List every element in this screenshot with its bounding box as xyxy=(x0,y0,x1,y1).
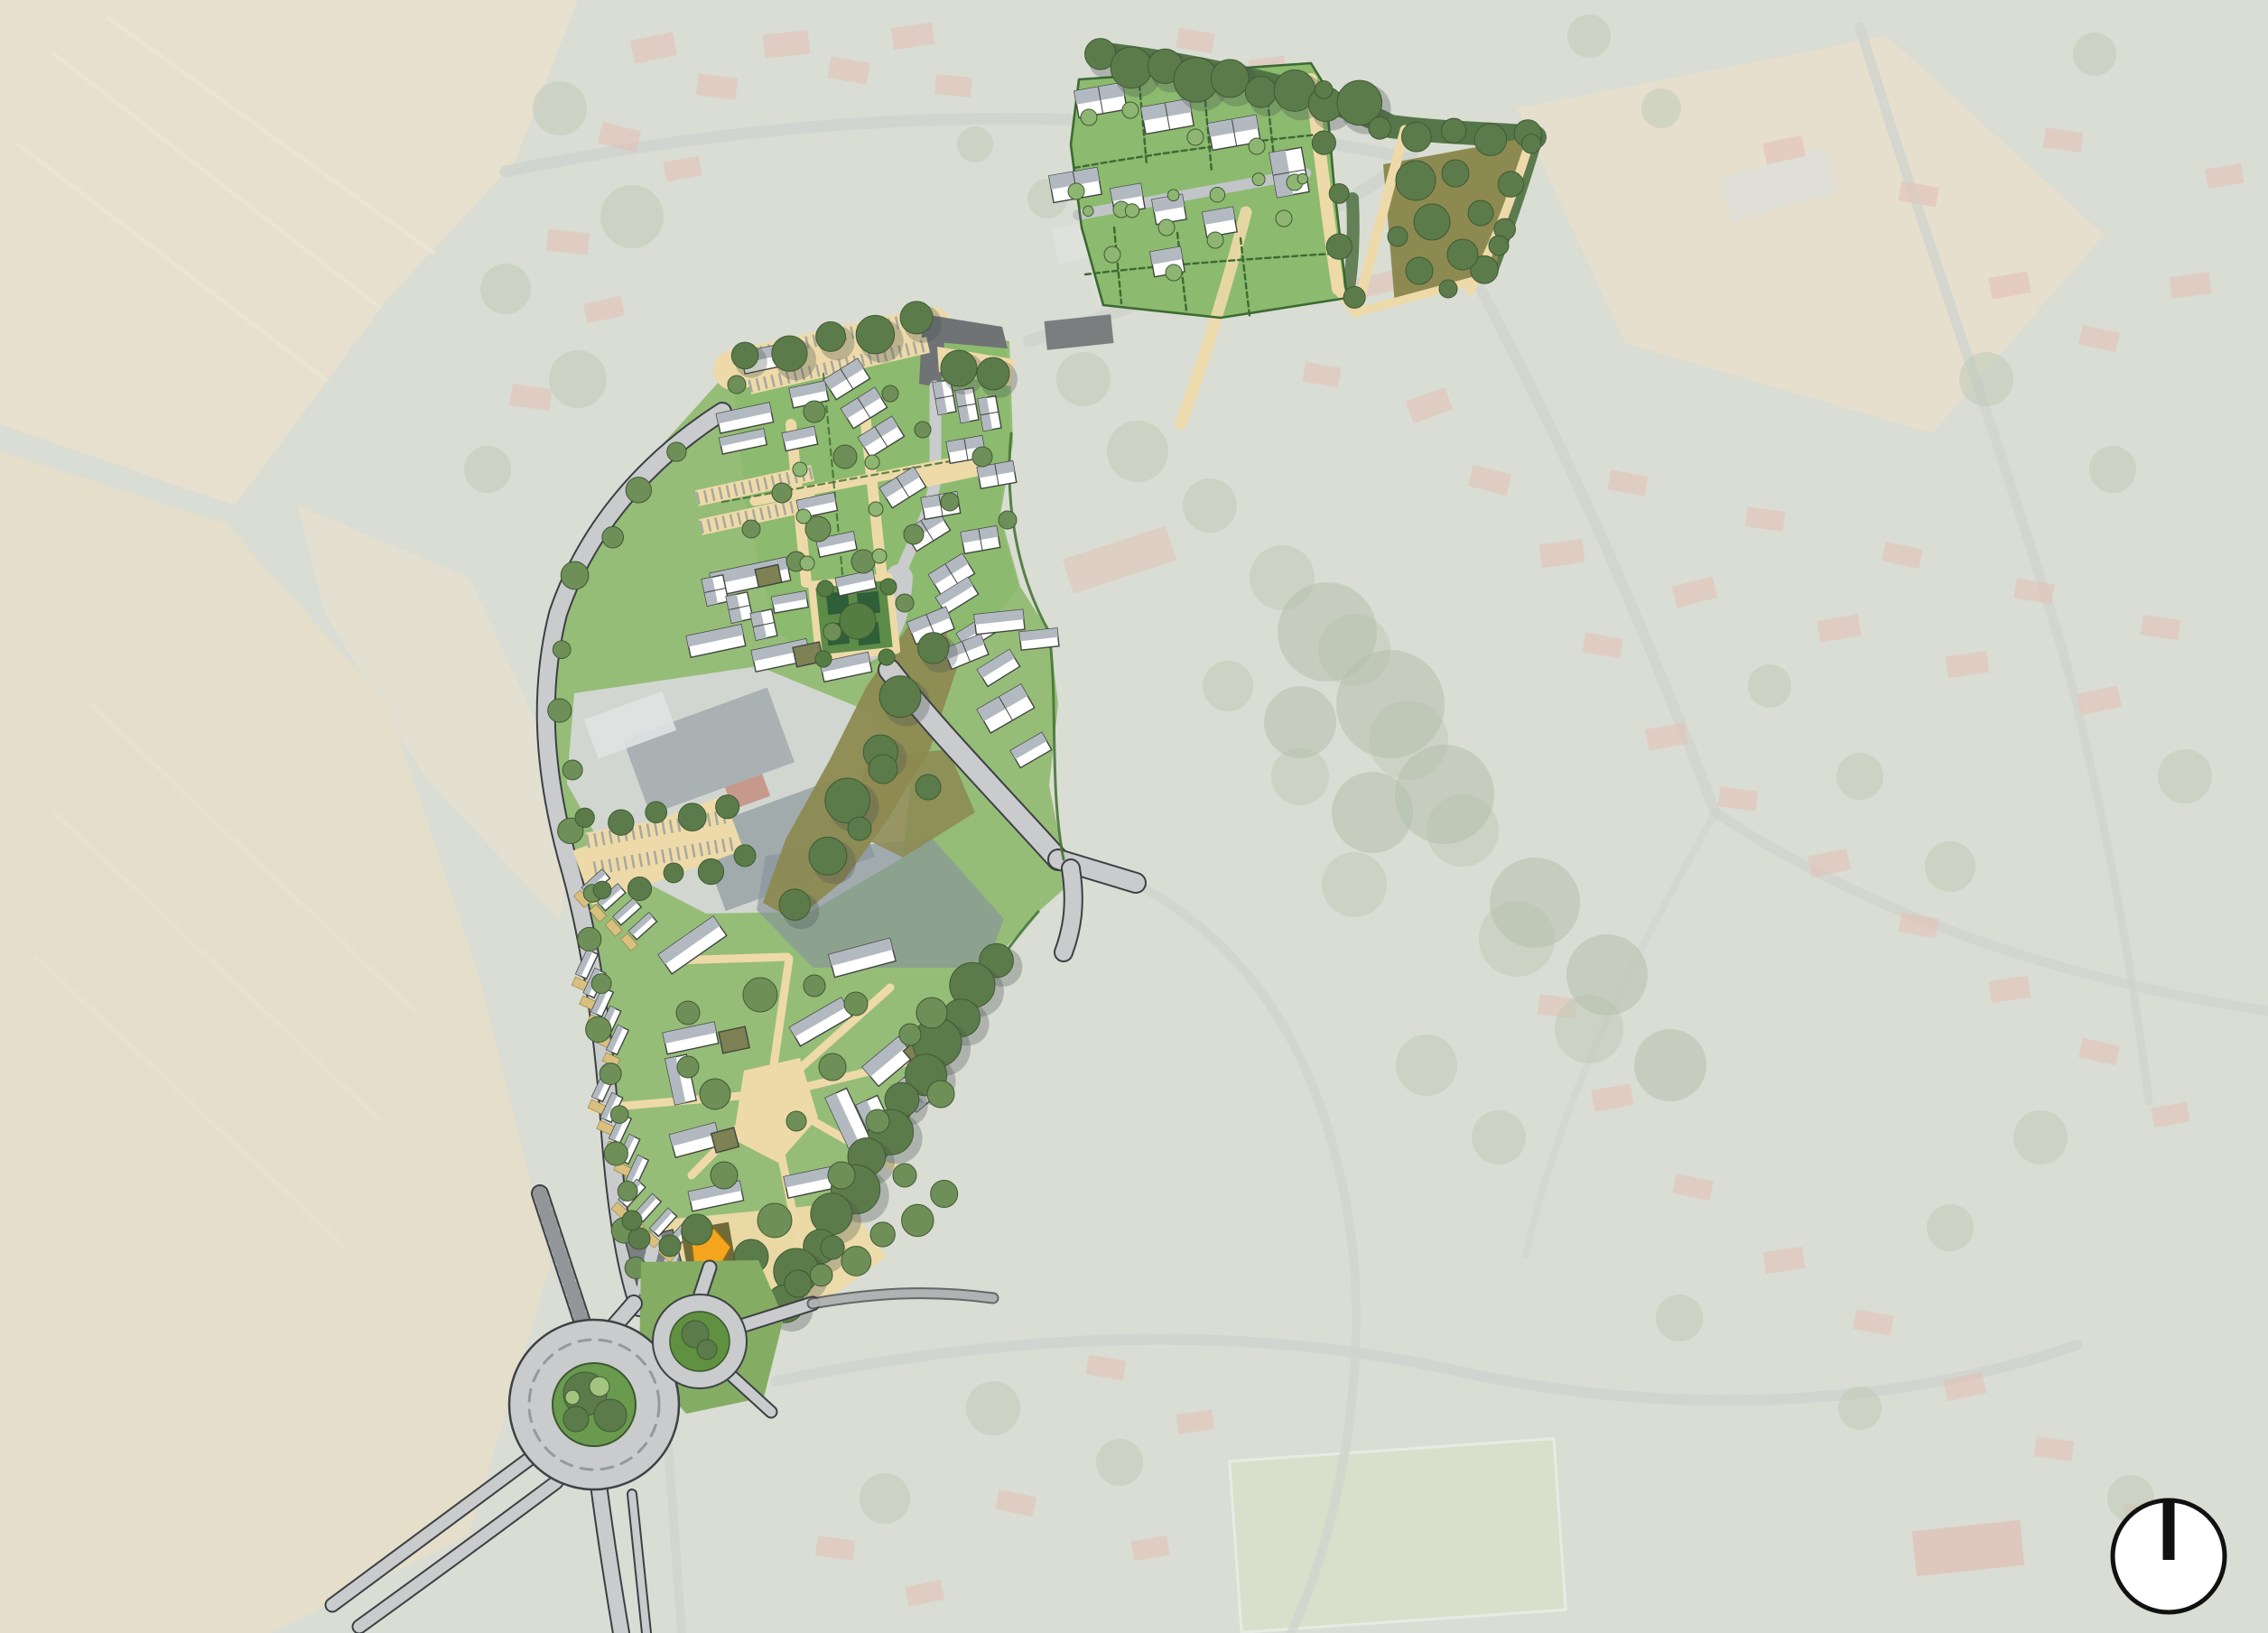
north-arrow-icon xyxy=(2113,1500,2225,1612)
masterplan-map-canvas xyxy=(0,0,2268,1633)
masterplan-aerial-svg xyxy=(0,0,2268,1633)
